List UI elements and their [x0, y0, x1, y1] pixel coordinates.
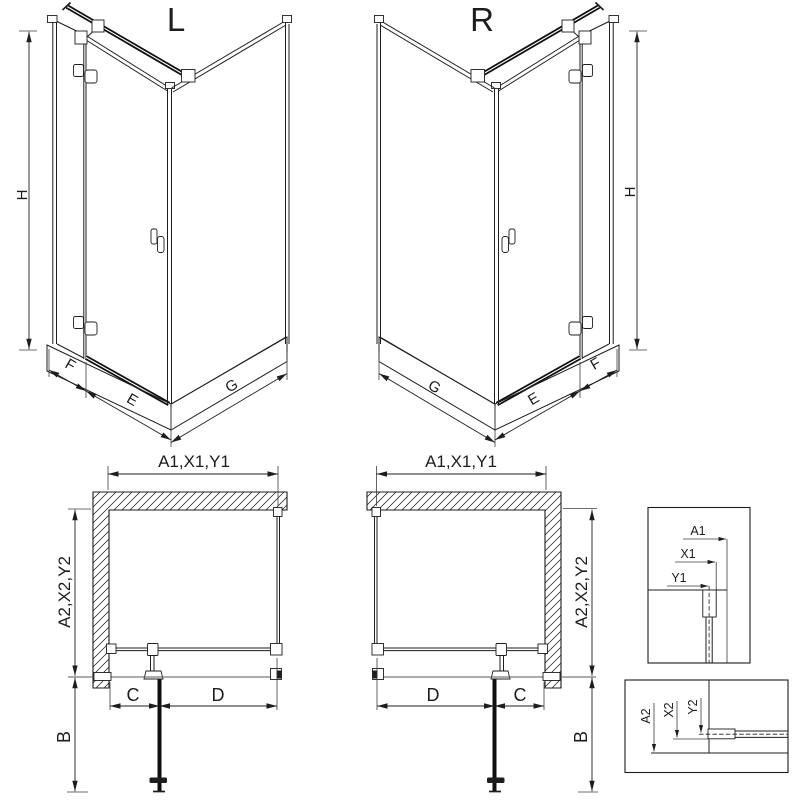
- dim-label-top-left-plan: A1,X1,Y1: [158, 452, 230, 471]
- technical-drawing-page: L H F E G R H F E G: [0, 0, 800, 800]
- door-handle-right: [487, 778, 505, 784]
- door-handle-left: [150, 778, 168, 784]
- detail-label-y1: Y1: [671, 571, 686, 585]
- dim-label-side-left-plan: A2,X2,Y2: [55, 556, 74, 628]
- dim-label-open-left-plan: B: [54, 731, 74, 743]
- dim-label-top-right-plan: A1,X1,Y1: [425, 452, 497, 471]
- detail-label-a1: A1: [690, 524, 705, 538]
- view-label-left: L: [167, 1, 185, 38]
- dim-label-door-left-plan: D: [212, 685, 225, 705]
- dim-label-fixed-left-plan: C: [127, 685, 140, 705]
- dim-label-open-right-plan: B: [571, 731, 591, 743]
- detail-label-x2: X2: [662, 702, 676, 717]
- detail-box-vertical: A2 X2 Y2: [625, 680, 788, 773]
- dim-label-height-left: H: [14, 190, 31, 201]
- detail-label-y2: Y2: [686, 699, 700, 714]
- detail-label-x1: X1: [680, 547, 695, 561]
- shower-enclosure-technical-drawing: L H F E G R H F E G: [0, 0, 800, 800]
- dim-label-side-right-plan: A2,X2,Y2: [572, 556, 591, 628]
- dim-label-fixed-right-plan: C: [514, 685, 527, 705]
- dim-label-height-right: H: [622, 187, 639, 198]
- detail-label-a2: A2: [639, 708, 653, 723]
- detail-box-horizontal: A1 X1 Y1: [648, 508, 750, 664]
- dim-label-door-right-plan: D: [427, 685, 440, 705]
- view-label-right: R: [470, 1, 494, 38]
